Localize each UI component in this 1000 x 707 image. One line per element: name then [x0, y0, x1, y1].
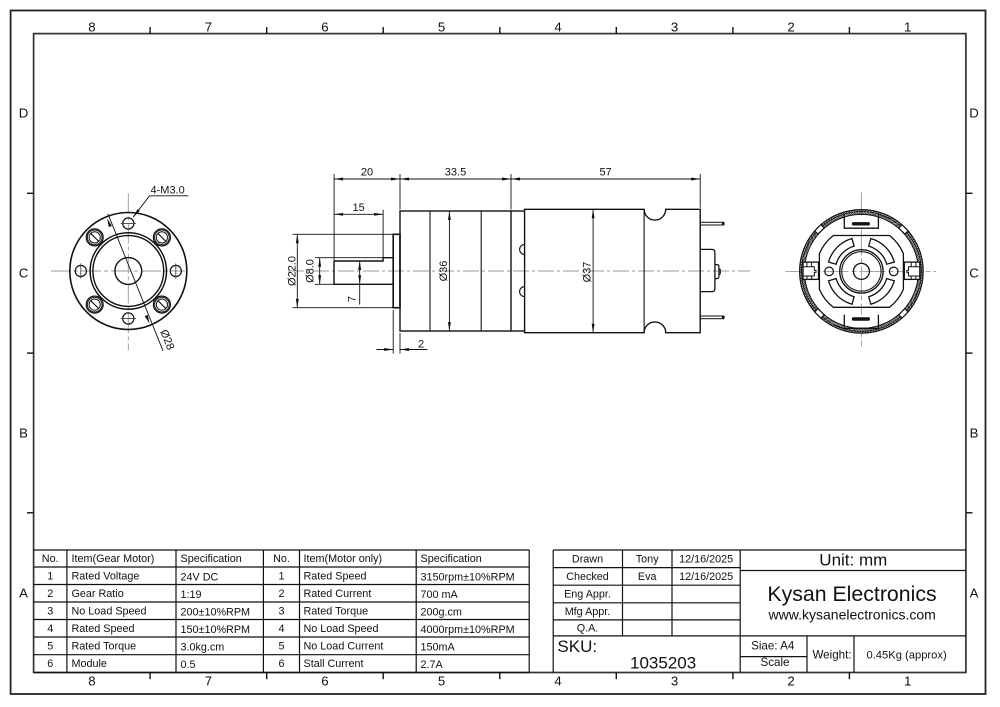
svg-text:Ø28: Ø28	[157, 328, 176, 352]
svg-text:3.0kg.cm: 3.0kg.cm	[181, 641, 225, 653]
svg-text:2: 2	[787, 20, 794, 35]
svg-text:15: 15	[352, 202, 364, 214]
svg-text:7: 7	[347, 296, 359, 302]
svg-text:Item(Motor only): Item(Motor only)	[304, 553, 383, 565]
svg-text:1: 1	[47, 570, 53, 582]
svg-text:1:19: 1:19	[181, 589, 202, 601]
svg-text:0.45Kg (approx): 0.45Kg (approx)	[866, 650, 946, 662]
svg-text:Weight:: Weight:	[812, 649, 851, 662]
svg-text:150±10%RPM: 150±10%RPM	[181, 624, 251, 636]
svg-text:Ø22.0: Ø22.0	[287, 256, 299, 286]
svg-text:20: 20	[361, 167, 373, 179]
svg-text:4000rpm±10%RPM: 4000rpm±10%RPM	[421, 624, 515, 636]
svg-text:Drawn: Drawn	[572, 553, 603, 565]
svg-text:Ø36: Ø36	[438, 261, 450, 282]
svg-text:2: 2	[278, 588, 284, 600]
svg-text:1035203: 1035203	[630, 654, 696, 673]
svg-text:SKU:: SKU:	[557, 637, 597, 656]
svg-text:4: 4	[278, 623, 284, 635]
svg-text:Unit: mm: Unit: mm	[819, 550, 887, 569]
svg-text:No.: No.	[42, 553, 59, 565]
svg-text:Kysan Electronics: Kysan Electronics	[767, 582, 936, 606]
svg-text:6: 6	[47, 658, 53, 670]
svg-text:3: 3	[671, 674, 678, 689]
svg-text:1: 1	[278, 570, 284, 582]
svg-text:2: 2	[418, 339, 424, 351]
svg-text:Rated Speed: Rated Speed	[72, 623, 135, 635]
svg-text:7: 7	[205, 20, 212, 35]
svg-text:C: C	[969, 265, 979, 280]
svg-text:6: 6	[321, 20, 328, 35]
svg-text:A: A	[19, 585, 28, 600]
svg-text:0.5: 0.5	[181, 659, 196, 671]
svg-text:1: 1	[904, 674, 911, 689]
svg-text:Rated Voltage: Rated Voltage	[72, 570, 140, 582]
svg-text:Scale: Scale	[760, 656, 789, 669]
svg-text:Specification: Specification	[181, 553, 242, 565]
svg-text:12/16/2025: 12/16/2025	[679, 553, 733, 565]
svg-text:Ø37: Ø37	[582, 262, 594, 283]
svg-text:Rated Torque: Rated Torque	[72, 640, 137, 652]
svg-text:57: 57	[599, 167, 611, 179]
svg-text:8: 8	[88, 674, 95, 689]
svg-text:Item(Gear Motor): Item(Gear Motor)	[72, 553, 155, 565]
svg-text:D: D	[969, 105, 979, 120]
svg-text:B: B	[19, 425, 28, 440]
svg-text:Mfg Appr.: Mfg Appr.	[565, 606, 611, 618]
svg-text:4: 4	[554, 20, 561, 35]
svg-text:Module: Module	[72, 658, 107, 670]
svg-text:Eva: Eva	[638, 571, 657, 583]
svg-text:www.kysanelectronics.com: www.kysanelectronics.com	[768, 607, 936, 623]
svg-text:200g.cm: 200g.cm	[421, 606, 462, 618]
svg-text:2: 2	[787, 674, 794, 689]
svg-text:6: 6	[278, 658, 284, 670]
svg-text:Stall Current: Stall Current	[304, 658, 364, 670]
svg-text:150mA: 150mA	[421, 641, 456, 653]
svg-text:No Load Speed: No Load Speed	[304, 623, 379, 635]
svg-text:D: D	[19, 105, 29, 120]
svg-text:5: 5	[278, 640, 284, 652]
svg-text:200±10%RPM: 200±10%RPM	[181, 606, 251, 618]
svg-text:24V DC: 24V DC	[181, 571, 219, 583]
svg-text:Ø8.0: Ø8.0	[305, 259, 317, 283]
svg-text:Tony: Tony	[636, 553, 659, 565]
svg-text:5: 5	[438, 674, 445, 689]
svg-text:3: 3	[671, 20, 678, 35]
svg-text:5: 5	[438, 20, 445, 35]
svg-text:3: 3	[47, 605, 53, 617]
svg-text:A: A	[970, 585, 979, 600]
svg-text:12/16/2025: 12/16/2025	[679, 571, 733, 583]
svg-text:No Load Current: No Load Current	[304, 640, 384, 652]
svg-text:B: B	[970, 425, 979, 440]
svg-text:Q.A.: Q.A.	[577, 622, 599, 634]
svg-text:4: 4	[47, 623, 53, 635]
svg-text:1: 1	[904, 20, 911, 35]
svg-text:700 mA: 700 mA	[421, 589, 459, 601]
svg-text:33.5: 33.5	[445, 167, 466, 179]
svg-text:4: 4	[554, 674, 561, 689]
svg-text:6: 6	[321, 674, 328, 689]
svg-text:7: 7	[205, 674, 212, 689]
svg-text:3: 3	[278, 605, 284, 617]
svg-text:Checked: Checked	[566, 571, 609, 583]
svg-text:3150rpm±10%RPM: 3150rpm±10%RPM	[421, 571, 515, 583]
svg-text:2.7A: 2.7A	[421, 659, 444, 671]
svg-text:Gear Ratio: Gear Ratio	[72, 588, 124, 600]
svg-text:Rated Torque: Rated Torque	[304, 605, 369, 617]
svg-text:No.: No.	[273, 553, 290, 565]
svg-text:2: 2	[47, 588, 53, 600]
svg-text:C: C	[19, 265, 29, 280]
svg-text:Rated Current: Rated Current	[304, 588, 372, 600]
svg-text:Specification: Specification	[421, 553, 482, 565]
svg-text:Siae: A4: Siae: A4	[751, 639, 795, 652]
svg-text:Rated Speed: Rated Speed	[304, 570, 367, 582]
svg-text:4-M3.0: 4-M3.0	[151, 185, 185, 197]
svg-text:8: 8	[88, 20, 95, 35]
svg-text:Eng Appr.: Eng Appr.	[564, 589, 611, 601]
svg-text:5: 5	[47, 640, 53, 652]
svg-text:No Load Speed: No Load Speed	[72, 605, 147, 617]
